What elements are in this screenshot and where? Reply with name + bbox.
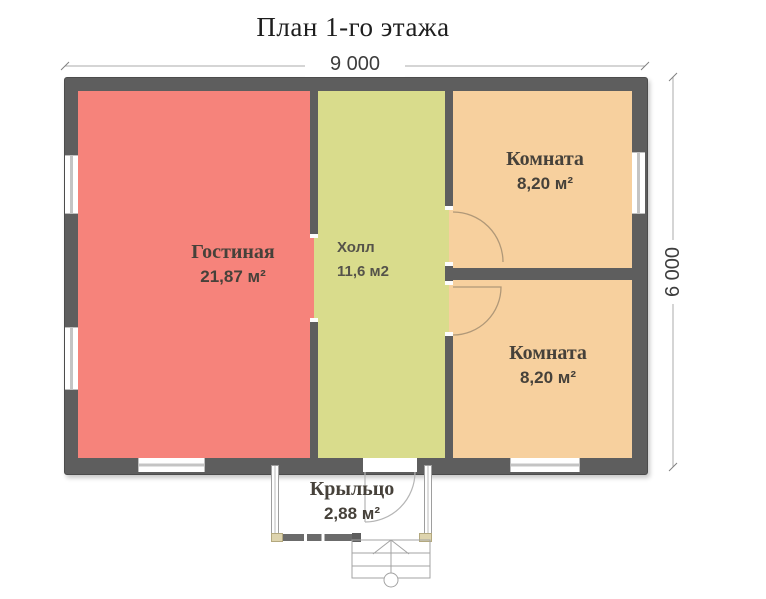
label-hall: Холл 11,6 м2: [337, 236, 389, 284]
bedroom-top-name: Комната: [447, 148, 643, 171]
dimension-width-label: 9 000: [305, 51, 405, 77]
window-bottom-living: [138, 458, 205, 472]
porch-railing: [283, 534, 353, 541]
entrance-door-opening: [363, 458, 417, 472]
hall-area: 11,6 м2: [337, 260, 389, 284]
porch-post-left: [271, 533, 283, 542]
porch-post-right: [419, 533, 432, 542]
label-living: Гостиная 21,87 м²: [128, 241, 338, 287]
bedroom-bottom-area: 8,20 м²: [450, 368, 646, 388]
jamb-living-hall-bottom: [310, 318, 318, 322]
label-bedroom-bottom: Комната 8,20 м²: [450, 342, 646, 388]
stairs: [352, 540, 430, 587]
jamb-room-bottom-a: [445, 281, 453, 285]
porch-area: 2,88 м²: [277, 504, 427, 524]
porch-post-middle: [352, 533, 361, 542]
label-porch: Крыльцо 2,88 м²: [277, 478, 427, 524]
jamb-room-top-b: [445, 262, 453, 266]
floor-plan-page: План 1-го этажа: [0, 0, 766, 599]
living-name: Гостиная: [128, 241, 338, 264]
porch-name: Крыльцо: [277, 478, 427, 501]
stairs-direction-arrow: [373, 540, 409, 554]
jamb-room-top-a: [445, 206, 453, 210]
hall-name: Холл: [337, 236, 389, 260]
window-left-lower: [65, 327, 78, 390]
window-left-upper: [65, 155, 78, 214]
plan-title: План 1-го этажа: [53, 12, 653, 43]
window-bottom-bedroom: [510, 458, 580, 472]
living-area: 21,87 м²: [128, 267, 338, 287]
wall-living-hall-upper: [310, 91, 318, 238]
wall-between-bedrooms: [453, 268, 632, 280]
label-bedroom-top: Комната 8,20 м²: [447, 148, 643, 194]
bedroom-bottom-name: Комната: [450, 342, 646, 365]
dimension-height-label: 6 000: [660, 240, 686, 304]
stairs-pole: [384, 573, 398, 587]
jamb-living-hall-top: [310, 234, 318, 238]
bedroom-top-area: 8,20 м²: [447, 174, 643, 194]
wall-living-hall-lower: [310, 318, 318, 458]
jamb-room-bottom-b: [445, 332, 453, 336]
